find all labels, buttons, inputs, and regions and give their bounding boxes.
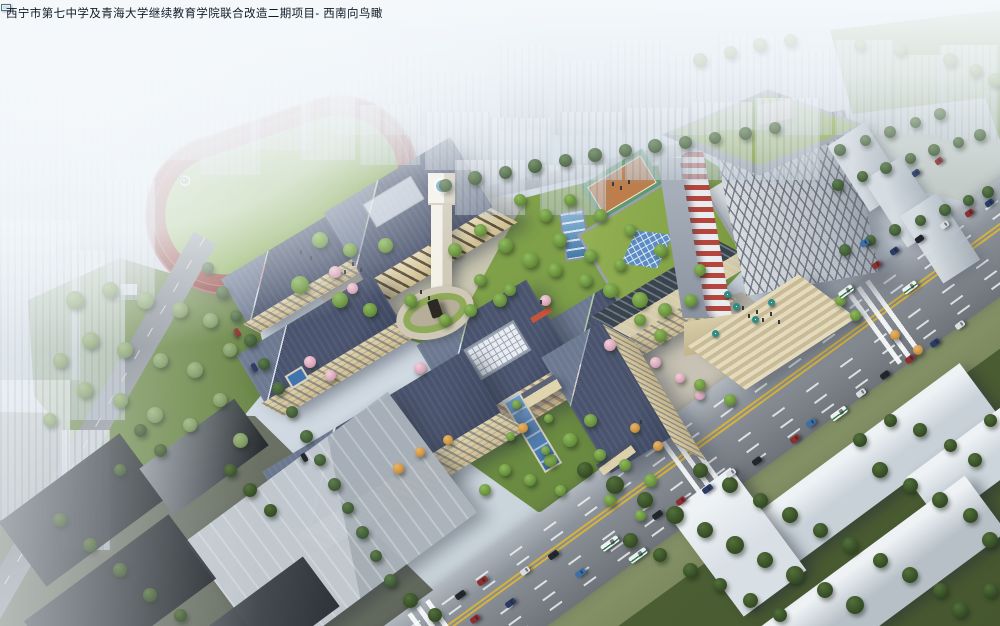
aerial-rendering-scene: 西宁市第七中学及青海大学继续教育学院联合改造二期项目- 西南向鸟瞰	[0, 0, 1000, 626]
person	[344, 270, 346, 274]
tree	[724, 394, 736, 406]
tree	[603, 283, 618, 298]
tree	[137, 292, 154, 309]
tree	[414, 362, 426, 374]
person	[778, 320, 780, 324]
tree	[233, 433, 248, 448]
person	[352, 262, 354, 266]
tree	[594, 449, 606, 461]
tree	[342, 502, 354, 514]
umbrella	[752, 316, 759, 323]
tree	[623, 533, 638, 548]
tree	[584, 249, 597, 262]
tree	[83, 538, 97, 552]
tree	[66, 291, 84, 309]
tree	[347, 283, 358, 294]
tree	[224, 464, 237, 477]
tree	[244, 334, 257, 347]
tree	[522, 252, 538, 268]
person	[770, 312, 772, 316]
tree	[114, 464, 126, 476]
tree	[786, 566, 804, 584]
tree	[614, 259, 626, 271]
tree	[332, 292, 348, 308]
tree	[286, 406, 298, 418]
tree	[915, 215, 926, 226]
tree	[555, 485, 566, 496]
background-building	[300, 95, 355, 160]
tree	[187, 362, 203, 378]
tree	[850, 310, 861, 321]
person	[742, 306, 744, 310]
tree	[117, 342, 133, 358]
tree	[857, 171, 868, 182]
tree	[944, 439, 957, 452]
tree	[860, 135, 871, 146]
tree	[952, 602, 968, 618]
tree	[694, 264, 706, 276]
tree	[634, 314, 646, 326]
tree	[213, 393, 227, 407]
tree	[328, 478, 341, 491]
tree	[974, 129, 986, 141]
tree	[559, 154, 572, 167]
tree	[753, 38, 767, 52]
tree	[512, 400, 521, 409]
tree	[524, 474, 536, 486]
tree	[694, 379, 706, 391]
court	[179, 176, 187, 184]
tree	[666, 506, 684, 524]
background-building	[200, 95, 260, 175]
tree	[713, 578, 727, 592]
background-building	[130, 70, 200, 160]
tree	[548, 263, 562, 277]
tree	[658, 303, 672, 317]
tree	[143, 588, 157, 602]
person	[540, 300, 542, 304]
tree	[872, 462, 888, 478]
tree	[983, 583, 998, 598]
tree	[890, 330, 900, 340]
tree	[675, 373, 685, 383]
tree	[147, 407, 163, 423]
tree	[880, 162, 892, 174]
tree	[498, 238, 513, 253]
umbrella	[768, 299, 775, 306]
tree	[300, 430, 313, 443]
tree	[769, 122, 781, 134]
tree	[650, 357, 661, 368]
court-surface	[183, 179, 186, 182]
tree	[291, 276, 309, 294]
tree	[773, 608, 787, 622]
tree	[693, 53, 707, 67]
tree	[183, 418, 197, 432]
tree	[544, 414, 553, 423]
tree	[953, 137, 964, 148]
tree	[884, 414, 897, 427]
tree	[474, 274, 486, 286]
tree	[853, 433, 867, 447]
tree	[854, 39, 866, 51]
tree	[53, 353, 68, 368]
tree	[934, 108, 946, 120]
tree	[653, 548, 667, 562]
tree	[739, 127, 752, 140]
tree	[404, 294, 417, 307]
tree	[370, 550, 382, 562]
tree	[154, 444, 167, 457]
person	[748, 314, 750, 318]
tree	[932, 492, 948, 508]
umbrella	[712, 330, 719, 337]
tree	[343, 243, 357, 257]
tree	[378, 238, 393, 253]
clock-tower	[431, 176, 452, 294]
tree	[724, 46, 737, 59]
tree	[654, 329, 667, 342]
tree	[174, 609, 187, 622]
tree	[504, 284, 516, 296]
tree	[82, 332, 99, 349]
tree	[884, 126, 896, 138]
tree	[499, 464, 511, 476]
background-building	[835, 40, 893, 135]
tree	[134, 424, 147, 437]
tree	[53, 513, 67, 527]
tree	[619, 144, 632, 157]
tree	[988, 73, 1000, 87]
tree	[577, 462, 593, 478]
tree	[637, 492, 653, 508]
tree	[902, 567, 918, 583]
tree	[648, 139, 662, 153]
tree	[514, 194, 526, 206]
tree	[243, 483, 257, 497]
tree	[312, 232, 328, 248]
tree	[518, 423, 528, 433]
tree	[726, 536, 744, 554]
tree	[695, 390, 705, 400]
tree	[635, 510, 646, 521]
tree	[272, 382, 285, 395]
person	[628, 180, 630, 184]
person	[420, 290, 422, 294]
person	[640, 420, 642, 424]
tree	[541, 446, 550, 455]
tree	[223, 343, 237, 357]
tree	[553, 233, 567, 247]
tree	[329, 266, 341, 278]
background-building	[540, 165, 606, 215]
tree	[968, 453, 982, 467]
tree	[782, 507, 798, 523]
tree	[172, 302, 188, 318]
tree	[579, 274, 592, 287]
tree	[584, 414, 597, 427]
tree	[813, 523, 828, 538]
title-text: 西宁市第七中学及青海大学继续教育学院联合改造二期项目- 西南向鸟瞰	[6, 7, 383, 21]
tree	[889, 224, 901, 236]
tree	[709, 132, 721, 144]
tree	[943, 53, 957, 67]
tree	[832, 179, 844, 191]
tree	[448, 243, 462, 257]
umbrella	[733, 303, 740, 310]
tree	[679, 136, 692, 149]
tree	[439, 179, 452, 192]
tree	[644, 474, 657, 487]
title-bar: 西宁市第七中学及青海大学继续教育学院联合改造二期项目- 西南向鸟瞰	[1, 4, 11, 11]
tree	[258, 358, 270, 370]
person	[762, 318, 764, 322]
tree	[216, 286, 229, 299]
tree	[619, 459, 631, 471]
tree	[982, 186, 994, 198]
tree	[757, 552, 773, 568]
tree	[153, 353, 168, 368]
tree	[439, 314, 451, 326]
background-building	[690, 102, 752, 180]
tree	[963, 195, 974, 206]
person	[756, 310, 758, 314]
tree	[606, 476, 624, 494]
tree	[842, 537, 858, 553]
tree	[479, 484, 491, 496]
tree	[903, 478, 918, 493]
tree	[683, 563, 698, 578]
background-building	[455, 160, 525, 215]
tree	[933, 583, 948, 598]
umbrella	[724, 291, 731, 298]
tree	[384, 574, 397, 587]
tree	[493, 293, 507, 307]
tree	[873, 553, 888, 568]
tree	[428, 608, 442, 622]
tree	[630, 423, 640, 433]
tree	[894, 44, 906, 56]
person	[612, 182, 614, 186]
tree	[363, 303, 377, 317]
tree	[839, 244, 851, 256]
tree	[817, 582, 833, 598]
tree	[304, 356, 316, 368]
background-building	[755, 98, 820, 180]
tree	[604, 339, 616, 351]
tree	[684, 294, 697, 307]
tree	[314, 454, 326, 466]
tree	[753, 493, 768, 508]
tree	[588, 148, 602, 162]
tree	[464, 304, 477, 317]
tree	[264, 504, 277, 517]
tree	[113, 393, 128, 408]
tree	[697, 522, 713, 538]
background-building	[360, 105, 420, 165]
tree	[982, 532, 998, 548]
tree	[356, 526, 369, 539]
tree	[499, 166, 512, 179]
tree	[913, 345, 923, 355]
tree	[722, 477, 738, 493]
person	[300, 250, 302, 254]
tree	[693, 463, 708, 478]
tree	[928, 144, 940, 156]
tree	[624, 224, 636, 236]
tree	[969, 64, 982, 77]
tree	[230, 310, 242, 322]
tree	[939, 204, 951, 216]
tree	[468, 171, 482, 185]
person	[428, 296, 430, 300]
tree	[202, 262, 214, 274]
tree	[528, 159, 542, 173]
tree	[604, 494, 616, 506]
tree	[43, 413, 57, 427]
tree	[653, 441, 663, 451]
tree	[563, 433, 577, 447]
person	[620, 186, 622, 190]
tree	[984, 414, 997, 427]
tree	[544, 454, 557, 467]
tree	[403, 593, 418, 608]
tree	[474, 224, 487, 237]
tree	[784, 34, 797, 47]
tree	[415, 447, 425, 457]
tree	[102, 282, 118, 298]
tree	[632, 292, 648, 308]
tree	[77, 382, 93, 398]
person	[360, 268, 362, 272]
tree	[393, 463, 404, 474]
tree	[905, 153, 916, 164]
tree	[594, 209, 607, 222]
tree	[654, 244, 667, 257]
tree	[846, 596, 864, 614]
tree	[113, 563, 127, 577]
tree	[325, 370, 336, 381]
tree	[910, 117, 921, 128]
tree	[506, 432, 515, 441]
tree	[203, 313, 218, 328]
tree	[963, 508, 978, 523]
tree	[834, 144, 846, 156]
tree	[564, 194, 576, 206]
tree	[743, 593, 758, 608]
tree	[539, 209, 552, 222]
tree	[443, 435, 453, 445]
person	[310, 256, 312, 260]
tree	[913, 423, 927, 437]
